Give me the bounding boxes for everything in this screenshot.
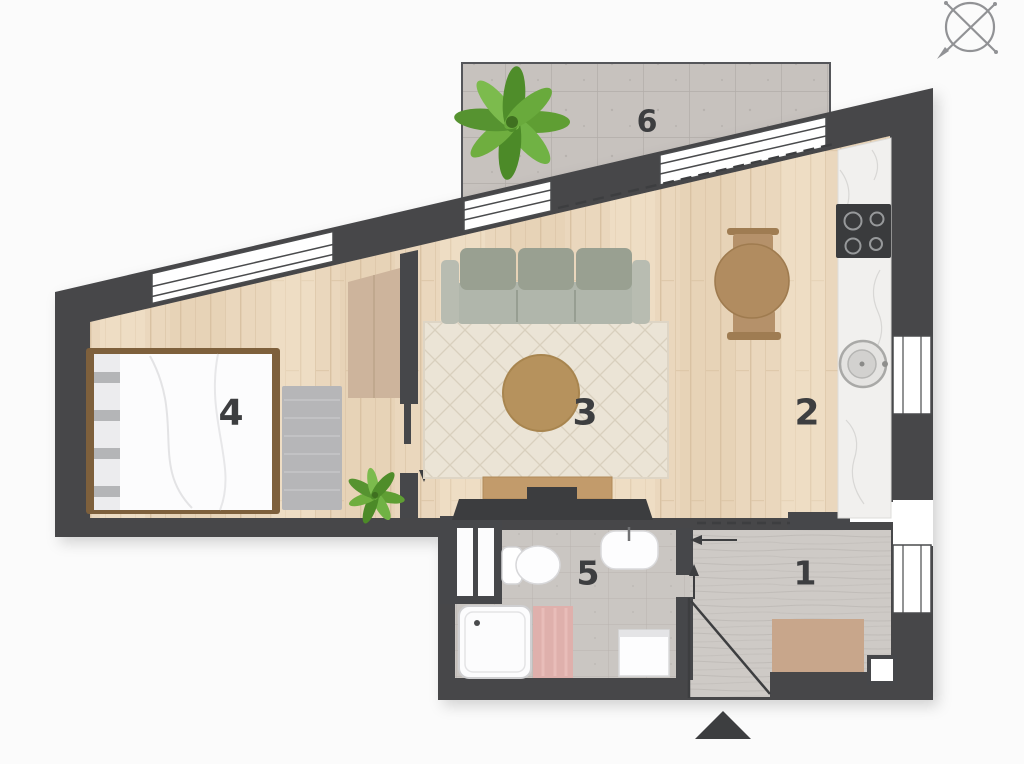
room-label-bedroom: 4 — [218, 393, 243, 434]
bed-duvet — [120, 354, 272, 510]
sofa-armrest-left — [441, 260, 459, 324]
room-label-hallway: 1 — [794, 554, 817, 593]
bathroom-right-wall-lower — [676, 597, 693, 680]
shower — [459, 606, 531, 678]
coffee-table — [503, 355, 579, 431]
room-label-balcony: 6 — [637, 105, 658, 140]
tv-screen — [452, 499, 653, 520]
bathroom-right-wall-upper — [676, 528, 693, 575]
tv-mount — [527, 487, 577, 499]
floor-plan-canvas: 6 — [0, 0, 1024, 764]
cooktop — [836, 204, 891, 258]
hallway-mat — [772, 619, 864, 672]
bedroom-rug — [282, 386, 342, 510]
corner-opening — [893, 500, 933, 546]
bedroom-door-leaf — [404, 404, 411, 444]
hallway-window — [893, 545, 931, 613]
sofa — [441, 248, 650, 324]
bed-pillows — [94, 354, 120, 510]
shower-drain — [474, 620, 480, 626]
bathroom-rug — [533, 606, 573, 678]
kitchen-window — [893, 336, 931, 414]
floor-plan-page: 6 — [0, 0, 1024, 764]
kitchen-counter — [838, 138, 891, 518]
kitchen-sink — [840, 341, 888, 387]
bedroom-living-wall-lower — [400, 473, 418, 518]
washing-machine — [619, 630, 669, 676]
bathroom-sink — [601, 527, 658, 569]
room-label-kitchen: 2 — [794, 393, 819, 434]
kitchen-faucet — [882, 361, 888, 367]
sofa-armrest-right — [632, 260, 650, 324]
dining-table — [715, 244, 789, 318]
room-label-living-room: 3 — [572, 393, 597, 434]
bed — [86, 348, 280, 514]
room-label-bathroom: 5 — [577, 554, 600, 593]
hallway-niche — [869, 657, 895, 683]
bedroom-living-wall — [400, 250, 418, 404]
toilet — [502, 546, 560, 584]
bathroom-left-door-slot-1 — [457, 528, 473, 596]
bathroom-left-door-slot-2 — [478, 528, 494, 596]
